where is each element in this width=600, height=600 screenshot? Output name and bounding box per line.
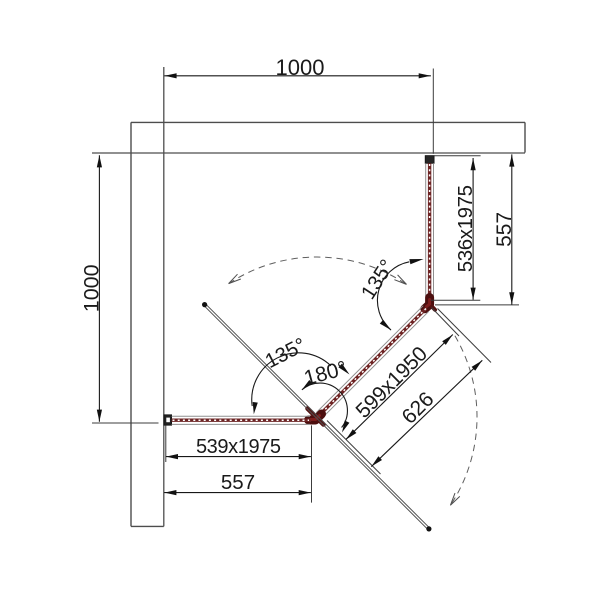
svg-text:180°: 180° bbox=[302, 357, 350, 390]
svg-text:557: 557 bbox=[493, 212, 516, 247]
svg-text:626: 626 bbox=[397, 388, 438, 429]
svg-text:135°: 135° bbox=[357, 255, 399, 303]
svg-text:1000: 1000 bbox=[79, 264, 103, 312]
svg-text:557: 557 bbox=[221, 471, 255, 494]
svg-text:1000: 1000 bbox=[276, 55, 325, 80]
svg-text:536x1975: 536x1975 bbox=[454, 185, 477, 272]
svg-text:539x1975: 539x1975 bbox=[196, 436, 281, 458]
